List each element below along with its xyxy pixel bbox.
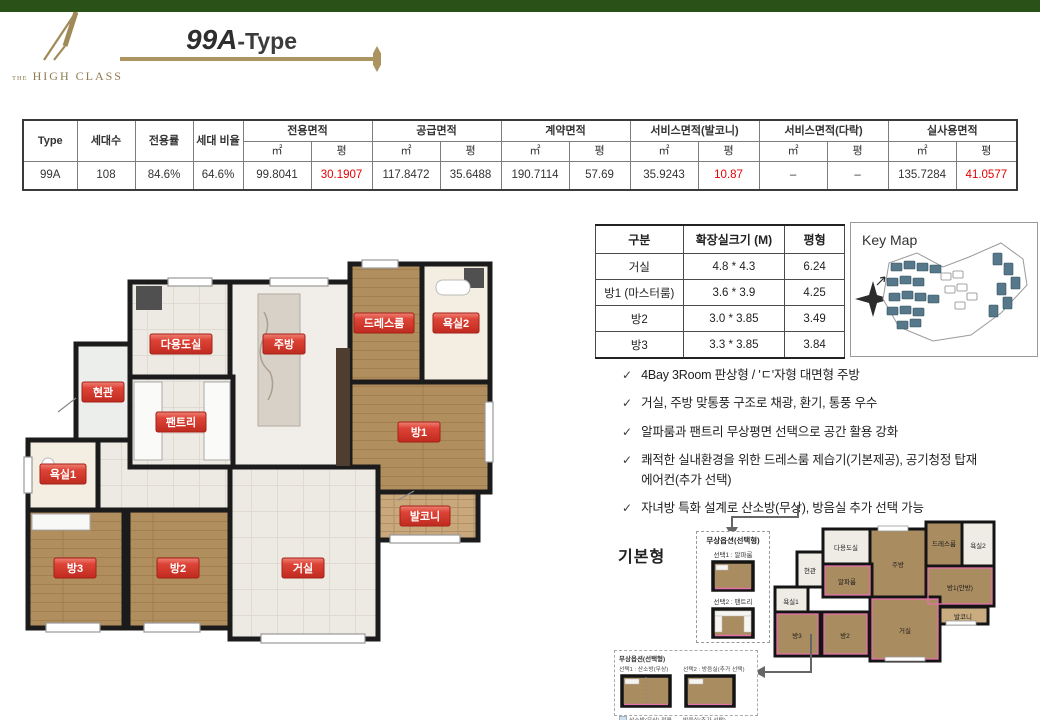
svg-text:욕실2: 욕실2	[443, 316, 469, 330]
svg-text:방3: 방3	[67, 561, 83, 575]
list-item: ✓4Bay 3Room 판상형 / 'ㄷ'자형 대면형 주방	[622, 366, 1037, 385]
svg-text:드레스룸: 드레스룸	[932, 539, 956, 548]
svg-text:팬트리: 팬트리	[166, 415, 196, 429]
rt-col-category: 구분	[596, 225, 684, 254]
key-map-drawing: Key Map	[851, 223, 1035, 354]
feature-text: 거실, 주방 맞통풍 구조로 채광, 환기, 통풍 우수	[641, 394, 877, 413]
page: THE HIGH CLASS 99A-Type Type 세대수 전용률 세대 …	[0, 0, 1040, 720]
group-service-attic: 서비스면적(다락)	[759, 120, 888, 142]
free-option-box: 무상옵션(선택형) 선택1 : 알파룸 선택2 : 팬트리	[696, 531, 770, 643]
rt-cell: 4.25	[785, 280, 845, 306]
cell-value: 99.8041	[243, 162, 311, 191]
svg-text:현관: 현관	[804, 566, 816, 575]
room-living	[230, 467, 378, 639]
unit-m2: ㎡	[759, 142, 827, 162]
room-size-table: 구분 확장실크기 (M) 평형 거실 4.8 * 4.3 6.24 방1 (마스…	[595, 224, 845, 359]
page-title: 99A-Type	[186, 24, 297, 56]
cell-value: –	[759, 162, 827, 191]
room3-closet	[32, 514, 90, 530]
cell-value-highlight: 30.1907	[311, 162, 372, 191]
rt-cell: 방2	[596, 306, 684, 332]
pantry-cabinet-right	[204, 382, 230, 460]
svg-text:욕실1: 욕실1	[783, 597, 799, 606]
cell-value-highlight: 10.87	[698, 162, 759, 191]
label-bath2: 욕실2	[433, 313, 479, 333]
col-exclusive-rate: 전용률	[135, 120, 193, 162]
rt-col-size: 확장실크기 (M)	[683, 225, 785, 254]
unit-py: 평	[440, 142, 501, 162]
table-row: 거실 4.8 * 4.3 6.24	[596, 254, 845, 280]
brand-text: THE HIGH CLASS	[10, 69, 125, 84]
accent-divider-bar	[0, 0, 1040, 12]
unit-type-code: 99A	[186, 24, 237, 55]
unit-m2: ㎡	[888, 142, 956, 162]
brand-name: HIGH CLASS	[33, 69, 123, 83]
unit-py: 평	[569, 142, 630, 162]
bottom-option1-thumbnail	[619, 673, 673, 709]
brand-logo-icon	[10, 8, 125, 64]
unit-py: 평	[311, 142, 372, 162]
label-kitchen: 주방	[263, 334, 305, 354]
shaft-left	[136, 286, 162, 310]
kitchen-counter	[336, 348, 350, 466]
group-supply-area: 공급면적	[372, 120, 501, 142]
label-room3: 방3	[54, 558, 96, 578]
cell-value: 35.6488	[440, 162, 501, 191]
bottom-option1-label: 선택1 : 산소방(무상)	[619, 664, 673, 673]
svg-text:다용도실: 다용도실	[161, 337, 201, 351]
cell-value: 117.8472	[372, 162, 440, 191]
arrow-to-bottom-box	[753, 632, 815, 684]
svg-text:방2: 방2	[170, 561, 186, 575]
group-contract-area: 계약면적	[501, 120, 630, 142]
title-underline	[120, 57, 375, 61]
svg-text:거실: 거실	[293, 561, 313, 575]
key-map-panel: Key Map	[850, 222, 1038, 357]
cell-household-ratio: 64.6%	[193, 162, 243, 191]
svg-text:알파룸: 알파룸	[838, 577, 856, 586]
cell-value: 35.9243	[630, 162, 698, 191]
rt-cell: 거실	[596, 254, 684, 280]
feature-text: 알파룸과 팬트리 무상평면 선택으로 공간 활용 강화	[641, 423, 898, 442]
table-row: 방2 3.0 * 3.85 3.49	[596, 306, 845, 332]
unit-type-suffix: -Type	[237, 28, 297, 54]
compass-north-arrow	[877, 277, 885, 285]
floor-plan: 다용도실 주방 드레스룸 욕실2 현관 팬트리 욕실1 방1 발코니 방3 방2…	[18, 252, 583, 647]
cell-value-highlight: 41.0577	[956, 162, 1017, 191]
rt-cell: 3.6 * 3.9	[683, 280, 785, 306]
option-box-title: 무상옵션(선택형)	[706, 535, 759, 546]
label-utility: 다용도실	[150, 334, 212, 354]
check-icon: ✓	[622, 451, 632, 469]
cell-value: 190.7114	[501, 162, 569, 191]
legend-swatch	[619, 716, 627, 720]
bottom-option2-label: 선택2 : 방음실(추가 선택)	[683, 664, 745, 673]
cell-value: 57.69	[569, 162, 630, 191]
svg-text:발코니: 발코니	[410, 509, 440, 523]
label-entrance: 현관	[82, 382, 124, 402]
unit-m2: ㎡	[243, 142, 311, 162]
col-type: Type	[23, 120, 77, 162]
bath2-tub	[436, 280, 470, 295]
svg-text:주방: 주방	[274, 337, 294, 351]
svg-text:발코니: 발코니	[954, 612, 972, 621]
bottom-box-title: 무상옵션(선택형)	[619, 653, 753, 663]
list-item: ✓쾌적한 실내환경을 위한 드레스룸 제습기(기본제공), 공기청정 탑재 에어…	[622, 451, 1037, 490]
group-actual-area: 실사용면적	[888, 120, 1017, 142]
group-exclusive-area: 전용면적	[243, 120, 372, 142]
svg-text:다용도실: 다용도실	[834, 543, 858, 552]
rt-cell: 방1 (마스터룸)	[596, 280, 684, 306]
bottom-option1-caption: 산소방(무상) 적용	[619, 715, 673, 720]
svg-text:거실: 거실	[899, 626, 911, 635]
unit-py: 평	[956, 142, 1017, 162]
table-row: 방1 (마스터룸) 3.6 * 3.9 4.25	[596, 280, 845, 306]
table-row: 방3 3.3 * 3.85 3.84	[596, 332, 845, 359]
label-bath1: 욕실1	[40, 464, 86, 484]
svg-text:방1: 방1	[411, 425, 427, 439]
label-room2: 방2	[157, 558, 199, 578]
rt-cell: 방3	[596, 332, 684, 359]
rt-col-py: 평형	[785, 225, 845, 254]
check-icon: ✓	[622, 366, 632, 384]
label-pantry: 팬트리	[156, 412, 206, 432]
option1-label: 선택1 : 알파룸	[714, 549, 753, 559]
svg-text:욕실2: 욕실2	[970, 541, 986, 550]
rt-cell: 6.24	[785, 254, 845, 280]
rt-cell: 3.3 * 3.85	[683, 332, 785, 359]
list-item: ✓알파룸과 팬트리 무상평면 선택으로 공간 활용 강화	[622, 423, 1037, 442]
cell-value: 135.7284	[888, 162, 956, 191]
key-map-title: Key Map	[862, 232, 917, 248]
check-icon: ✓	[622, 423, 632, 441]
unit-py: 평	[827, 142, 888, 162]
unit-py: 평	[698, 142, 759, 162]
option1-thumbnail	[710, 559, 756, 593]
group-service-balcony: 서비스면적(발코니)	[630, 120, 759, 142]
svg-text:현관: 현관	[93, 385, 113, 399]
svg-text:욕실1: 욕실1	[50, 467, 76, 481]
rt-cell: 3.49	[785, 306, 845, 332]
rt-cell: 3.84	[785, 332, 845, 359]
label-room1: 방1	[398, 422, 440, 442]
label-dress: 드레스룸	[354, 313, 414, 333]
spec-row-99A: 99A 108 84.6% 64.6% 99.8041 30.1907 117.…	[23, 162, 1017, 191]
svg-text:방1(안방): 방1(안방)	[947, 583, 973, 592]
option2-thumbnail	[710, 606, 756, 640]
svg-text:방2: 방2	[840, 631, 850, 640]
label-living: 거실	[282, 558, 324, 578]
bottom-option2-caption: 방음실(추가 선택)	[683, 715, 745, 720]
feature-list: ✓4Bay 3Room 판상형 / 'ㄷ'자형 대면형 주방 ✓거실, 주방 맞…	[622, 366, 1037, 527]
cell-type: 99A	[23, 162, 77, 191]
cell-exclusive-rate: 84.6%	[135, 162, 193, 191]
option2-label: 선택2 : 팬트리	[714, 596, 753, 606]
bottom-option2: 선택2 : 방음실(추가 선택) 방음실(추가 선택)	[683, 664, 745, 720]
brand-logo: THE HIGH CLASS	[10, 8, 125, 86]
feature-text: 4Bay 3Room 판상형 / 'ㄷ'자형 대면형 주방	[641, 366, 860, 385]
label-balcony: 발코니	[400, 506, 450, 526]
area-spec-table: Type 세대수 전용률 세대 비율 전용면적 공급면적 계약면적 서비스면적(…	[22, 119, 1018, 191]
unit-m2: ㎡	[501, 142, 569, 162]
col-household-ratio: 세대 비율	[193, 120, 243, 162]
unit-m2: ㎡	[630, 142, 698, 162]
feature-text: 쾌적한 실내환경을 위한 드레스룸 제습기(기본제공), 공기청정 탑재 에어컨…	[641, 451, 977, 490]
svg-text:주방: 주방	[892, 560, 904, 569]
cell-value: –	[827, 162, 888, 191]
rt-cell: 3.0 * 3.85	[683, 306, 785, 332]
title-underline-ornament	[373, 46, 381, 72]
unit-m2: ㎡	[372, 142, 440, 162]
rt-cell: 4.8 * 4.3	[683, 254, 785, 280]
col-households: 세대수	[77, 120, 135, 162]
check-icon: ✓	[622, 394, 632, 412]
list-item: ✓자녀방 특화 설계로 산소방(무상), 방음실 추가 선택 가능	[622, 499, 1037, 518]
list-item: ✓거실, 주방 맞통풍 구조로 채광, 환기, 통풍 우수	[622, 394, 1037, 413]
check-icon: ✓	[622, 499, 632, 517]
bottom-option-box: 무상옵션(선택형) 선택1 : 산소방(무상) 산소방(무상) 적용 선택2 :…	[614, 650, 758, 716]
bottom-option2-thumbnail	[683, 673, 737, 709]
basic-type-label: 기본형	[618, 543, 665, 567]
bottom-option1: 선택1 : 산소방(무상) 산소방(무상) 적용	[619, 664, 673, 720]
svg-text:드레스룸: 드레스룸	[364, 316, 404, 330]
cell-households: 108	[77, 162, 135, 191]
brand-the: THE	[12, 75, 28, 82]
